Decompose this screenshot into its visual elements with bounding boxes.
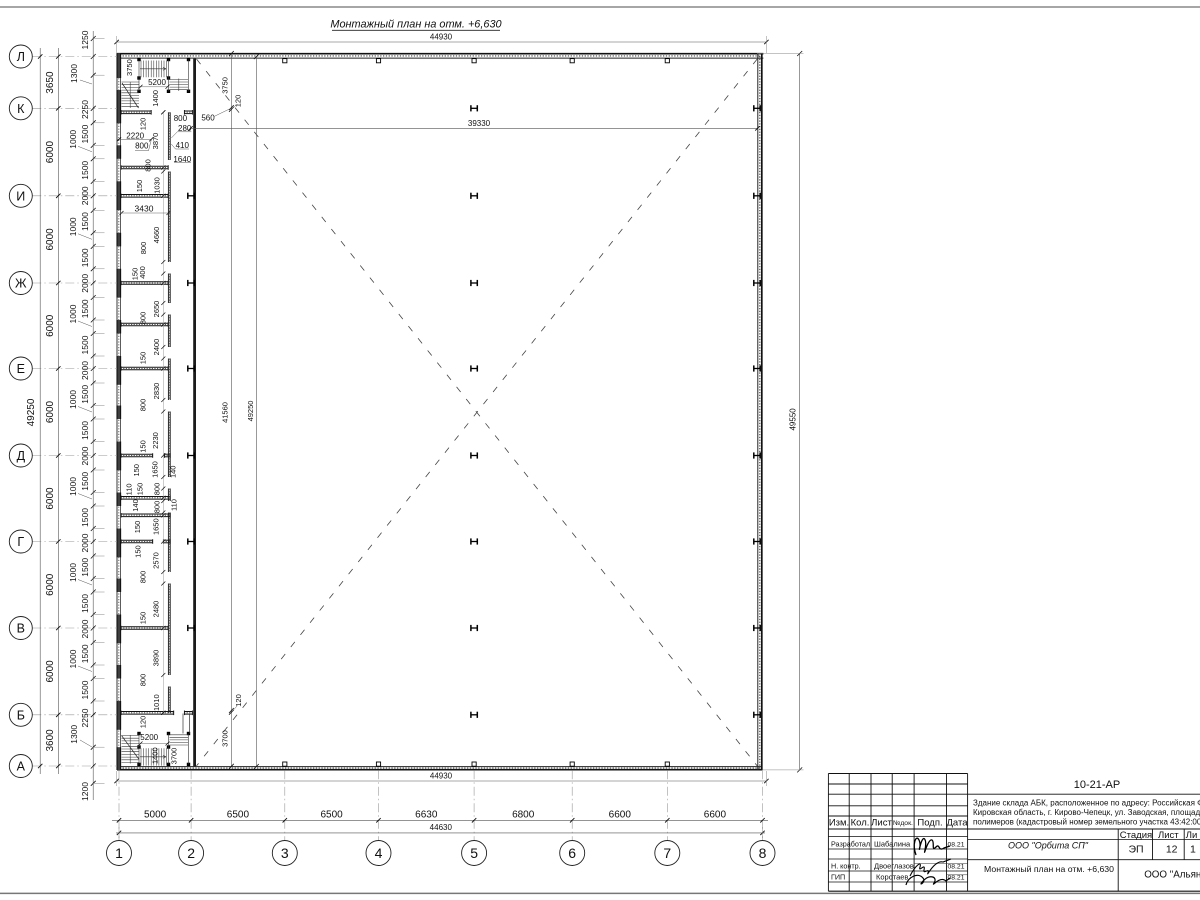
svg-text:6600: 6600 xyxy=(704,809,727,820)
svg-text:Стадия: Стадия xyxy=(1120,830,1152,841)
svg-text:Изм.: Изм. xyxy=(829,818,849,829)
svg-text:полимеров (кадастровый номер з: полимеров (кадастровый номер земельного … xyxy=(973,818,1200,827)
svg-text:1300: 1300 xyxy=(69,64,79,83)
svg-text:12: 12 xyxy=(1166,844,1178,856)
svg-text:1010: 1010 xyxy=(152,694,161,711)
svg-text:Кол.: Кол. xyxy=(851,818,870,829)
svg-text:1500: 1500 xyxy=(80,248,90,267)
svg-text:6000: 6000 xyxy=(45,573,56,596)
svg-text:150: 150 xyxy=(133,521,142,534)
svg-text:560: 560 xyxy=(201,113,215,122)
svg-text:Коротаев: Коротаев xyxy=(876,872,908,881)
svg-text:110: 110 xyxy=(170,499,179,511)
svg-text:1500: 1500 xyxy=(80,161,90,180)
svg-text:Б: Б xyxy=(17,708,25,722)
svg-text:ЭП: ЭП xyxy=(1128,844,1143,856)
svg-text:120: 120 xyxy=(139,118,148,131)
svg-text:3600: 3600 xyxy=(45,729,56,752)
svg-text:4660: 4660 xyxy=(152,227,161,244)
svg-text:К: К xyxy=(17,102,25,116)
svg-text:5200: 5200 xyxy=(140,733,158,742)
svg-text:1500: 1500 xyxy=(80,508,90,527)
svg-text:Здание склада АБК, расположенн: Здание склада АБК, расположенное по адре… xyxy=(973,798,1200,807)
svg-text:1500: 1500 xyxy=(80,558,90,577)
svg-text:6800: 6800 xyxy=(512,809,535,820)
svg-text:5000: 5000 xyxy=(144,809,167,820)
svg-text:Шабалина: Шабалина xyxy=(874,840,911,849)
svg-text:Н. контр.: Н. контр. xyxy=(831,861,861,870)
svg-text:5: 5 xyxy=(470,845,478,861)
svg-text:1400: 1400 xyxy=(151,747,160,764)
svg-text:1500: 1500 xyxy=(80,299,90,318)
svg-text:1500: 1500 xyxy=(80,472,90,491)
svg-text:150: 150 xyxy=(138,352,147,365)
svg-text:6000: 6000 xyxy=(45,660,56,683)
svg-text:6600: 6600 xyxy=(609,809,632,820)
svg-text:Кировская область, г. Кирово-Ч: Кировская область, г. Кирово-Чепецк, ул.… xyxy=(973,808,1200,817)
svg-text:39330: 39330 xyxy=(468,119,491,128)
svg-text:1000: 1000 xyxy=(68,390,78,409)
svg-text:140: 140 xyxy=(131,499,140,512)
svg-text:5200: 5200 xyxy=(148,78,166,87)
svg-text:1000: 1000 xyxy=(68,217,78,236)
svg-text:150: 150 xyxy=(134,545,143,558)
svg-text:2000: 2000 xyxy=(80,446,90,465)
svg-text:3890: 3890 xyxy=(152,650,161,667)
svg-text:3: 3 xyxy=(281,845,289,861)
svg-text:Дата: Дата xyxy=(946,818,968,829)
svg-text:3700: 3700 xyxy=(221,730,230,747)
svg-text:2650: 2650 xyxy=(152,301,161,318)
svg-text:1000: 1000 xyxy=(68,649,78,668)
svg-text:1500: 1500 xyxy=(80,212,90,231)
svg-text:120: 120 xyxy=(234,95,243,108)
svg-text:2000: 2000 xyxy=(80,619,90,638)
svg-text:№док.: №док. xyxy=(893,820,913,827)
svg-text:1500: 1500 xyxy=(80,385,90,404)
svg-text:В: В xyxy=(17,622,25,636)
svg-text:Е: Е xyxy=(17,362,25,376)
svg-text:49550: 49550 xyxy=(789,408,798,431)
svg-text:800: 800 xyxy=(139,242,148,255)
svg-text:Ж: Ж xyxy=(15,277,27,291)
svg-text:А: А xyxy=(17,760,26,774)
svg-text:41560: 41560 xyxy=(221,402,230,423)
svg-text:1500: 1500 xyxy=(80,335,90,354)
svg-text:6500: 6500 xyxy=(227,809,250,820)
svg-text:44630: 44630 xyxy=(430,823,453,832)
svg-text:800: 800 xyxy=(139,312,148,325)
svg-text:7: 7 xyxy=(663,845,671,861)
svg-text:120: 120 xyxy=(234,694,243,707)
svg-text:Ли: Ли xyxy=(1186,830,1198,841)
svg-text:1000: 1000 xyxy=(68,304,78,323)
svg-text:Монтажный план на отм. +6,630: Монтажный план на отм. +6,630 xyxy=(330,19,501,31)
svg-text:1250: 1250 xyxy=(80,30,90,49)
svg-text:2000: 2000 xyxy=(80,533,90,552)
svg-text:Лист: Лист xyxy=(1158,830,1179,841)
svg-text:2250: 2250 xyxy=(80,708,90,727)
svg-text:800: 800 xyxy=(152,483,161,496)
svg-text:800: 800 xyxy=(138,399,147,412)
svg-text:1500: 1500 xyxy=(80,421,90,440)
svg-text:Л: Л xyxy=(17,50,25,64)
svg-text:1500: 1500 xyxy=(80,680,90,699)
svg-text:6000: 6000 xyxy=(45,314,56,337)
svg-text:150: 150 xyxy=(132,464,141,477)
svg-text:3870: 3870 xyxy=(151,133,160,150)
svg-text:ГИП: ГИП xyxy=(831,872,845,881)
svg-text:08.21: 08.21 xyxy=(947,842,964,849)
svg-text:1000: 1000 xyxy=(68,477,78,496)
svg-text:И: И xyxy=(16,189,25,203)
svg-text:2400: 2400 xyxy=(152,339,161,356)
svg-text:6000: 6000 xyxy=(45,400,56,423)
svg-text:400: 400 xyxy=(138,266,147,279)
svg-text:6000: 6000 xyxy=(45,487,56,510)
svg-text:2: 2 xyxy=(187,845,195,861)
svg-text:08.21: 08.21 xyxy=(947,875,964,882)
svg-text:Г: Г xyxy=(17,535,24,549)
svg-text:150: 150 xyxy=(138,612,147,625)
svg-text:1500: 1500 xyxy=(80,124,90,143)
svg-text:1: 1 xyxy=(115,845,123,861)
svg-text:800: 800 xyxy=(138,674,147,687)
svg-text:2570: 2570 xyxy=(152,552,161,569)
svg-text:3700: 3700 xyxy=(169,748,178,765)
svg-text:1500: 1500 xyxy=(80,644,90,663)
svg-text:800: 800 xyxy=(144,159,153,172)
svg-text:2480: 2480 xyxy=(152,601,161,618)
svg-text:800: 800 xyxy=(153,501,162,514)
svg-text:3750: 3750 xyxy=(125,59,134,76)
svg-text:1500: 1500 xyxy=(80,594,90,613)
svg-text:Разработал: Разработал xyxy=(831,840,870,849)
svg-text:4: 4 xyxy=(375,845,383,861)
svg-text:140: 140 xyxy=(168,466,177,479)
svg-text:1300: 1300 xyxy=(69,725,79,744)
svg-text:8: 8 xyxy=(759,845,767,861)
svg-text:49250: 49250 xyxy=(26,398,37,426)
svg-text:1000: 1000 xyxy=(68,130,78,149)
svg-text:2000: 2000 xyxy=(80,274,90,293)
svg-text:6630: 6630 xyxy=(415,809,438,820)
svg-text:ООО "Альянс: ООО "Альянс xyxy=(1144,870,1200,881)
svg-text:Д: Д xyxy=(17,449,26,463)
svg-text:6500: 6500 xyxy=(320,809,343,820)
svg-text:150: 150 xyxy=(135,180,144,193)
svg-text:120: 120 xyxy=(139,716,148,729)
svg-text:800: 800 xyxy=(174,114,188,123)
svg-text:44930: 44930 xyxy=(430,772,453,781)
svg-text:10-21-АР: 10-21-АР xyxy=(1074,779,1120,791)
svg-text:1650: 1650 xyxy=(150,461,159,478)
svg-text:44930: 44930 xyxy=(430,33,453,42)
svg-text:2220: 2220 xyxy=(126,131,144,140)
svg-text:Подп.: Подп. xyxy=(917,818,942,829)
svg-text:150: 150 xyxy=(135,483,144,496)
svg-text:3750: 3750 xyxy=(221,77,230,94)
svg-text:6000: 6000 xyxy=(45,228,56,251)
svg-text:49250: 49250 xyxy=(246,401,255,422)
svg-text:800: 800 xyxy=(135,142,149,151)
svg-text:1000: 1000 xyxy=(68,563,78,582)
svg-text:ООО "Орбита СП": ООО "Орбита СП" xyxy=(1008,841,1089,851)
svg-text:2830: 2830 xyxy=(152,383,161,400)
svg-text:6: 6 xyxy=(568,845,576,861)
svg-text:2230: 2230 xyxy=(151,432,160,449)
svg-text:2000: 2000 xyxy=(80,361,90,380)
svg-text:1: 1 xyxy=(1190,844,1196,856)
svg-text:1400: 1400 xyxy=(151,90,160,107)
svg-text:3650: 3650 xyxy=(45,71,56,94)
svg-text:1650: 1650 xyxy=(152,518,161,535)
svg-text:1030: 1030 xyxy=(152,177,161,194)
svg-text:1200: 1200 xyxy=(80,782,90,801)
svg-text:800: 800 xyxy=(138,571,147,584)
svg-text:Лист: Лист xyxy=(871,818,892,829)
svg-text:3430: 3430 xyxy=(135,203,154,213)
svg-text:150: 150 xyxy=(138,440,147,453)
svg-text:2000: 2000 xyxy=(80,186,90,205)
svg-text:Монтажный план на отм. +6,630: Монтажный план на отм. +6,630 xyxy=(984,864,1114,874)
svg-text:6000: 6000 xyxy=(45,141,56,164)
svg-text:Двоеглазов: Двоеглазов xyxy=(874,861,914,870)
svg-text:110: 110 xyxy=(124,483,133,495)
svg-text:08.21: 08.21 xyxy=(947,864,964,871)
svg-text:2250: 2250 xyxy=(80,100,90,119)
